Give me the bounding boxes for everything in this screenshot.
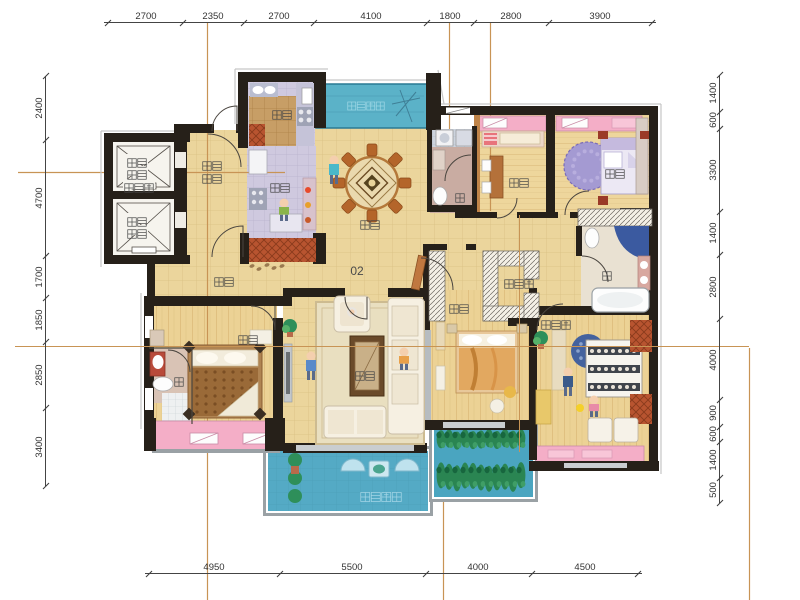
svg-text:2850: 2850 — [34, 364, 45, 385]
svg-text:900: 900 — [708, 405, 719, 421]
svg-text:1400: 1400 — [708, 449, 719, 470]
svg-text:2400: 2400 — [34, 97, 45, 118]
svg-text:2700: 2700 — [268, 11, 289, 22]
svg-text:1700: 1700 — [34, 266, 45, 287]
svg-text:4000: 4000 — [708, 349, 719, 370]
svg-text:1400: 1400 — [708, 82, 719, 103]
svg-text:2800: 2800 — [500, 11, 521, 22]
svg-text:4500: 4500 — [574, 562, 595, 573]
svg-text:1850: 1850 — [34, 309, 45, 330]
svg-text:4950: 4950 — [203, 562, 224, 573]
svg-text:4100: 4100 — [360, 11, 381, 22]
svg-text:02: 02 — [350, 264, 364, 278]
svg-text:3300: 3300 — [708, 159, 719, 180]
svg-text:2700: 2700 — [135, 11, 156, 22]
svg-text:4000: 4000 — [467, 562, 488, 573]
svg-text:600: 600 — [708, 426, 719, 442]
svg-text:5500: 5500 — [341, 562, 362, 573]
svg-text:1400: 1400 — [708, 222, 719, 243]
svg-text:600: 600 — [708, 112, 719, 128]
svg-text:500: 500 — [708, 482, 719, 498]
svg-text:4700: 4700 — [34, 187, 45, 208]
svg-text:2350: 2350 — [202, 11, 223, 22]
svg-text:1800: 1800 — [439, 11, 460, 22]
svg-text:3900: 3900 — [589, 11, 610, 22]
svg-text:2800: 2800 — [708, 276, 719, 297]
svg-text:3400: 3400 — [34, 436, 45, 457]
